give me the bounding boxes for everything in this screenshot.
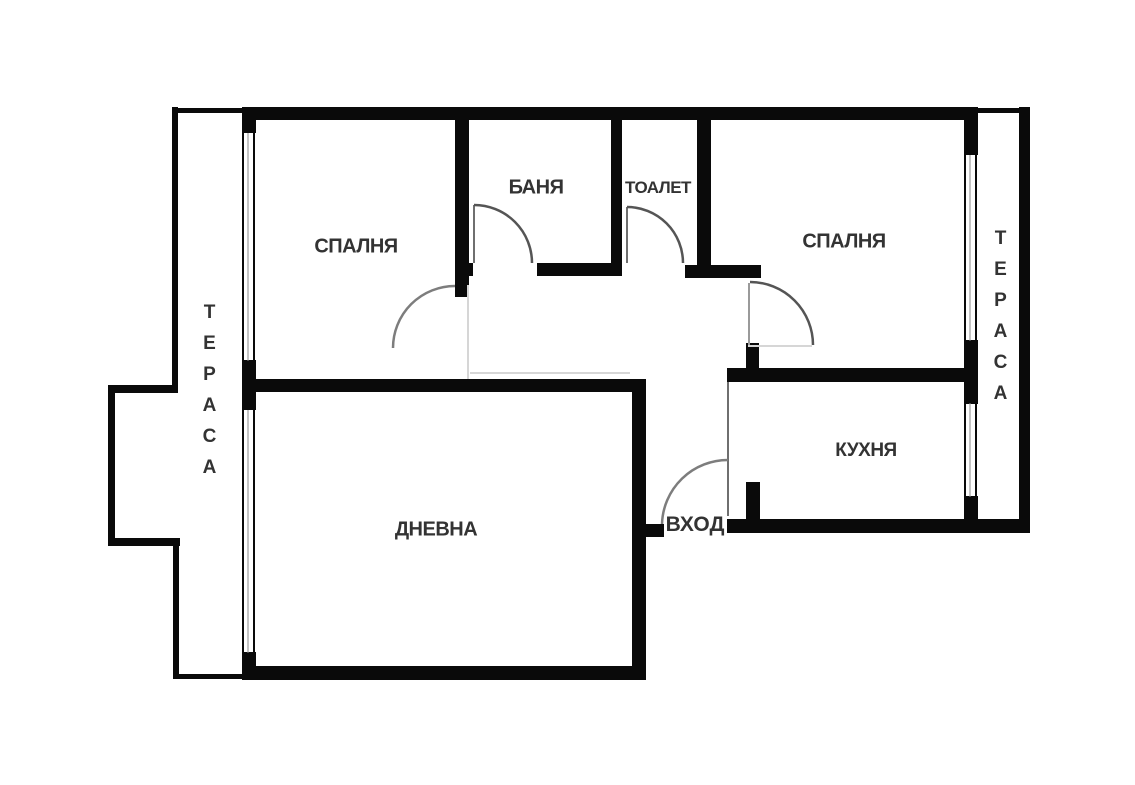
- window-livingroom-terrace: [243, 410, 254, 653]
- bedroom1-door: [393, 286, 455, 348]
- window-bedroom1-terrace: [243, 133, 254, 361]
- wall-livingroom-bottom: [245, 666, 646, 680]
- wall-bedroom2-kitchen: [727, 368, 978, 382]
- windows: [243, 133, 976, 653]
- pier-right-top: [964, 107, 978, 155]
- wall-terrace-bump-top: [108, 385, 178, 393]
- label-kitchen: КУХНЯ: [835, 440, 896, 462]
- wall-terrace-left-lower: [173, 538, 179, 679]
- wall-terrace-left-bottom: [173, 674, 245, 679]
- walls: [108, 107, 1030, 680]
- wall-terrace-bump-left: [108, 385, 115, 546]
- wall-kitchen-bottom: [727, 519, 1030, 533]
- label-living-room: ДНЕВНА: [395, 519, 477, 542]
- wall-right-exterior: [1019, 107, 1030, 533]
- wall-terrace-bump-bottom: [108, 538, 180, 546]
- stub-kitchen-door: [746, 482, 760, 527]
- toilet-door: [627, 207, 683, 263]
- label-entrance: ВХОД: [666, 513, 725, 537]
- sill-toilet-right-hall: [685, 265, 761, 278]
- floor-plan: СПАЛНЯ БАНЯ ТОАЛЕТ СПАЛНЯ КУХНЯ ДНЕВНА В…: [0, 0, 1135, 785]
- label-bathroom: БАНЯ: [509, 177, 564, 200]
- wall-livingroom-top: [245, 379, 646, 392]
- wall-bathroom-toilet: [611, 107, 622, 273]
- label-toilet: ТОАЛЕТ: [625, 178, 691, 198]
- pier-right-middle: [964, 340, 978, 404]
- wall-livingroom-right: [632, 383, 646, 679]
- window-kitchen-terrace: [965, 403, 976, 497]
- sill-bathroom-right: [537, 263, 622, 276]
- ghost-lines: [468, 285, 812, 379]
- wall-top-terrace-left: [173, 108, 245, 113]
- bedroom2-door: [749, 282, 813, 345]
- label-bedroom-left: СПАЛНЯ: [314, 236, 397, 259]
- window-bedroom2-terrace: [965, 155, 976, 341]
- label-terrace-right: ТЕРАСА: [989, 228, 1011, 414]
- wall-terrace-left-upper: [172, 107, 178, 393]
- sill-bathroom-left: [455, 263, 473, 276]
- wall-toilet-bedroom2: [697, 107, 711, 267]
- label-bedroom-right: СПАЛНЯ: [802, 231, 885, 254]
- bathroom-door: [474, 205, 532, 263]
- label-terrace-left: ТЕРАСА: [198, 302, 220, 488]
- wall-top-terrace-right: [977, 108, 1025, 113]
- floor-plan-drawing: [0, 0, 1135, 785]
- pier-left-top: [242, 107, 256, 133]
